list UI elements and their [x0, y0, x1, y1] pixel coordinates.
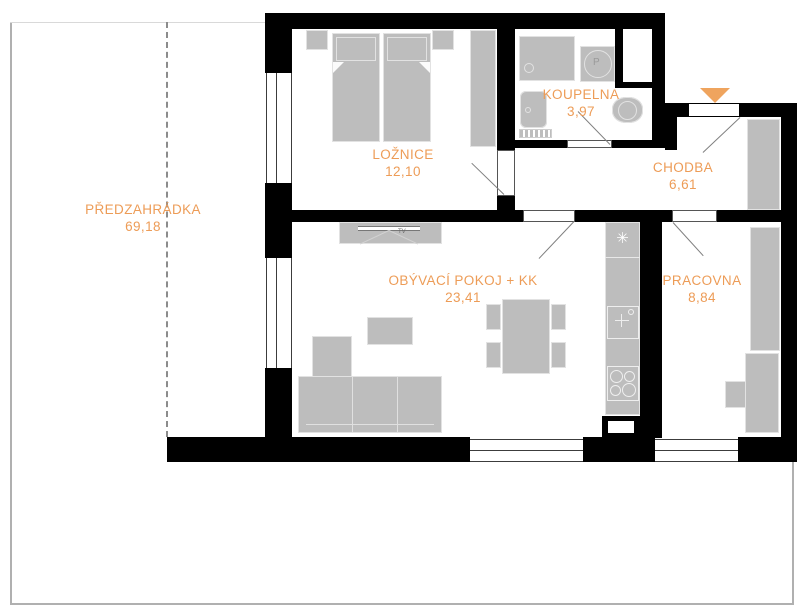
wall-segment: [640, 222, 662, 438]
room-label-chodba: CHODBA 6,61: [653, 159, 713, 193]
nightstand: [432, 30, 454, 50]
window: [266, 73, 292, 183]
frame-line-bottom: [10, 603, 794, 605]
bath-mat: [520, 130, 551, 137]
dining-chair: [486, 342, 501, 368]
wall-segment: [167, 437, 470, 462]
room-name: PŘEDZAHRÁDKA: [85, 201, 201, 218]
dining-table: [502, 299, 550, 374]
coffee-table: [367, 317, 413, 345]
bed-fold: [333, 62, 344, 73]
wall-segment: [265, 368, 292, 438]
wall-segment: [497, 196, 515, 222]
room-label-loznice: LOŽNICE 12,10: [372, 146, 433, 180]
wall-segment: [612, 140, 652, 148]
room-area: 8,84: [663, 289, 742, 306]
stove-burner: [622, 383, 636, 397]
door-swing-line: [673, 222, 704, 256]
floor-plan: P ✳ TV PŘEDZAHRÁDKA 69,18 LOŽNICE 12,10: [0, 0, 803, 616]
room-label-koupelna: KOUPELNA 3,97: [543, 86, 620, 120]
wall-segment: [615, 82, 652, 88]
wall-segment: [583, 437, 655, 462]
room-name: KOUPELNA: [543, 86, 620, 103]
wall-segment: [615, 29, 623, 88]
wall-segment: [575, 210, 672, 222]
kitchen-sink: [607, 306, 639, 339]
wall-segment: [508, 140, 567, 148]
room-label-pracovna: PRACOVNA 8,84: [663, 272, 742, 306]
room-label-predzahradka: PŘEDZAHRÁDKA 69,18: [85, 201, 201, 235]
room-area: 6,61: [653, 176, 713, 193]
toilet-bowl: [618, 101, 637, 120]
wall-segment: [265, 13, 665, 29]
wall-segment: [665, 117, 677, 150]
room-area: 12,10: [372, 163, 433, 180]
stove-burner: [610, 370, 623, 383]
room-name: OBÝVACÍ POKOJ + KK: [388, 272, 537, 289]
entrance-door: [688, 103, 740, 117]
room-name: LOŽNICE: [372, 146, 433, 163]
window: [655, 439, 738, 462]
bed-pillow: [336, 37, 376, 61]
wall-segment: [781, 103, 797, 462]
tv-label: TV: [398, 229, 406, 235]
study-door: [672, 210, 717, 222]
study-cabinet: [750, 227, 780, 351]
window: [470, 439, 583, 462]
living-room-door: [523, 210, 575, 222]
room-label-obyvaci-pokoj: OBÝVACÍ POKOJ + KK 23,41: [388, 272, 537, 306]
bed-pillow: [387, 37, 427, 61]
room-area: 3,97: [543, 103, 620, 120]
desk-chair: [725, 381, 746, 408]
wall-segment: [665, 103, 688, 117]
room-name: PRACOVNA: [663, 272, 742, 289]
kitchen-faucet: [628, 309, 634, 315]
dining-chair: [551, 304, 566, 330]
bed-fold: [419, 62, 430, 73]
wall-segment: [270, 210, 523, 222]
wall-segment: [738, 437, 797, 462]
shower-drain: [524, 63, 534, 73]
frame-line-top: [10, 22, 266, 23]
dining-chair: [551, 342, 566, 368]
door-swing-line: [703, 117, 741, 153]
fridge-divider: [605, 257, 640, 258]
bathroom-sink-drain: [525, 107, 531, 113]
kitchen-faucet-mark: [615, 320, 629, 321]
room-area: 23,41: [388, 289, 537, 306]
frame-line-right: [792, 462, 794, 605]
room-area: 69,18: [85, 218, 201, 235]
room-name: CHODBA: [653, 159, 713, 176]
wall-segment: [497, 29, 515, 150]
window: [266, 258, 292, 368]
kitchen-faucet-mark: [621, 314, 622, 327]
wardrobe: [470, 30, 496, 147]
vent-shaft-opening: [608, 421, 634, 433]
desk: [745, 353, 779, 433]
sofa-seat-line: [306, 424, 434, 425]
stove-burner: [624, 371, 635, 382]
entrance-arrow-icon: [700, 88, 730, 103]
nightstand: [306, 30, 328, 50]
frame-line-left: [10, 22, 12, 605]
door-swing-line: [539, 221, 575, 259]
fridge-icon: ✳: [605, 229, 640, 247]
hall-closet: [747, 119, 780, 210]
stove-burner: [610, 385, 621, 396]
wall-segment: [265, 13, 292, 73]
wall-segment: [652, 13, 665, 148]
dining-chair: [486, 304, 501, 330]
shower: [519, 36, 575, 81]
washing-machine-label: P: [593, 57, 600, 68]
